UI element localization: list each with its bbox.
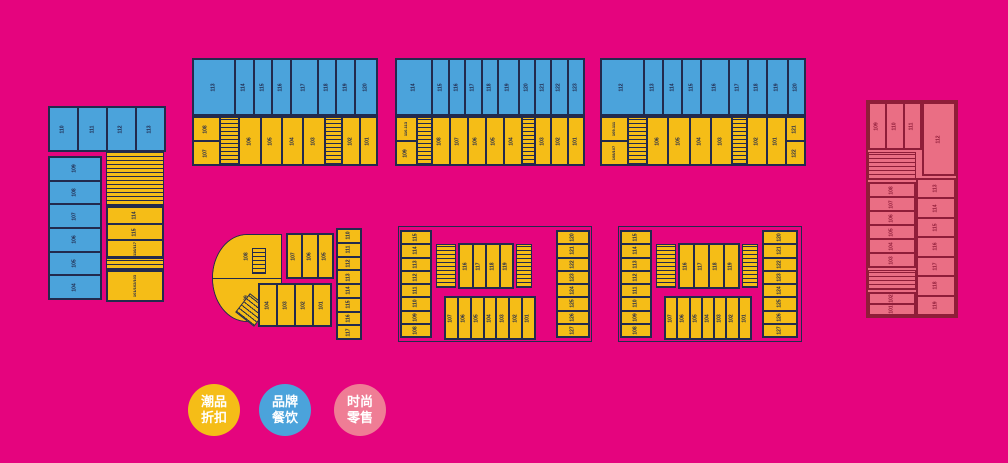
room-label: 110 (61, 125, 66, 133)
room: 107 (869, 197, 915, 211)
room-label: 116 (346, 314, 351, 322)
bottom1-stairwell (252, 248, 266, 274)
room: 107 (287, 234, 302, 278)
room: 108 (213, 235, 281, 279)
room-label: 113 (413, 260, 418, 268)
room: 112 (401, 271, 431, 284)
room-label: 109-111 (612, 122, 616, 136)
room: 115 (682, 59, 701, 115)
room-label: 108 (634, 326, 639, 334)
room: 115 (621, 231, 651, 244)
room-label: 118 (490, 262, 495, 270)
bottom2-stairwell-2 (516, 244, 532, 288)
room-label: 112 (620, 83, 625, 91)
top1-dining-row: 113114115116117118119120 (192, 58, 378, 116)
room-label: 108 (414, 326, 419, 334)
room: 105 (869, 225, 915, 239)
room-label: 118 (755, 83, 760, 91)
room: 123 (557, 271, 589, 284)
room: 126 (557, 311, 589, 324)
room-label: 111 (413, 287, 418, 295)
room-label: 119 (343, 83, 348, 91)
room: 115 (107, 224, 163, 241)
room-label: 109 (73, 165, 78, 173)
room-label: 115 (132, 228, 137, 236)
room-label: 103 (541, 137, 546, 145)
room-label: 102 (557, 137, 562, 145)
room-label: 105 (323, 252, 328, 260)
room: 106 (239, 117, 260, 165)
legend-item-retail: 时尚 零售 (334, 384, 386, 436)
room-label: 107 (890, 200, 895, 208)
room: 116 (459, 244, 473, 288)
room: 119 (724, 244, 739, 288)
room-label: 111 (90, 125, 95, 133)
room-label: 117 (933, 262, 938, 270)
room-label: 120 (778, 233, 783, 241)
room: 121 (557, 244, 589, 257)
room-label: 110 (633, 300, 638, 308)
room-label: 102 (348, 137, 353, 145)
retail-room-112: 112 (922, 102, 956, 176)
room-label: 106 (890, 214, 895, 222)
room-label: 101 (573, 137, 578, 145)
room-label: 101 (774, 137, 779, 145)
bottom1-mid-row: 104103102101 (258, 283, 332, 327)
retail-left-col: 108107106105104103 (868, 182, 916, 268)
bottom3-right-strip: 120121122123124125126127 (762, 230, 798, 338)
retail-stairwell-2 (868, 270, 916, 290)
room: 119 (336, 59, 355, 115)
room-label: 124 (778, 286, 783, 294)
room: 112 (601, 59, 644, 115)
room: 107 (193, 141, 220, 165)
stairwell (417, 117, 432, 165)
room: 116 (701, 59, 729, 115)
room-label: 109 (404, 149, 409, 157)
room: 109 (396, 141, 417, 165)
stairwell (325, 117, 342, 165)
retail-top-row: 109110111 (868, 102, 922, 150)
bottom2-mid-top: 116117118119 (458, 243, 514, 289)
room: 108/107 (601, 141, 628, 165)
room-label: 106 (307, 252, 312, 260)
room: 106 (302, 234, 317, 278)
room-label: 121 (571, 247, 576, 255)
room: 104 (504, 117, 522, 165)
room-label: 127 (571, 326, 576, 334)
bottom2-stairwell (436, 244, 456, 288)
legend-label: 折扣 (201, 410, 227, 426)
room-label: 105 (693, 314, 698, 322)
room-label: 118 (933, 282, 938, 290)
left-right-lower: 101/102/103 (106, 270, 164, 302)
room-label: 113 (211, 83, 216, 91)
room: 107 (49, 204, 101, 228)
room: 104 (49, 275, 101, 299)
room: 110 (49, 107, 78, 151)
room-label: 121 (541, 83, 546, 91)
retail-right-col: 113114115116117118119 (916, 178, 956, 316)
room-label: 120 (571, 233, 576, 241)
room: 112 (923, 103, 955, 175)
room-label: 112 (413, 273, 418, 281)
room: 123 (763, 271, 797, 284)
room-label: 123 (571, 273, 576, 281)
room-label: 114 (242, 83, 247, 91)
room: 105 (668, 117, 689, 165)
room-label: 122 (557, 83, 562, 91)
room-label: 113 (148, 125, 153, 133)
room-label: 125 (571, 300, 576, 308)
room: 111 (337, 243, 361, 257)
room-label: 117 (302, 83, 307, 91)
room: 124 (557, 284, 589, 297)
room-label: 123 (778, 273, 783, 281)
room: 117 (729, 59, 748, 115)
room-stack: 110-113109 (396, 117, 417, 165)
room: 114 (396, 59, 432, 115)
room-label: 105 (475, 314, 480, 322)
retail-stairwell (868, 152, 916, 180)
left-col: 109108107106105104 (48, 156, 102, 300)
legend-label: 零售 (347, 410, 373, 426)
room-label: 104 (698, 137, 703, 145)
room: 114 (107, 207, 163, 224)
room: 115 (337, 298, 361, 312)
bottom3-mid-bottom: 107106105104103102101 (664, 296, 752, 340)
room: 103 (711, 117, 732, 165)
room: 122 (763, 258, 797, 271)
room-label: 108/107 (612, 146, 616, 160)
bottom2-left-strip: 115114113112111110109108 (400, 230, 432, 338)
room: 117 (291, 59, 318, 115)
room-label: 107 (456, 137, 461, 145)
room-label: 102 (890, 294, 895, 302)
left-top-row: 110111112113 (48, 106, 166, 152)
bottom3-left-strip: 115114113112111110109108 (620, 230, 652, 338)
room-label: 112 (346, 259, 351, 267)
room: 113 (644, 59, 663, 115)
room: 118 (486, 244, 500, 288)
room-label: 106 (73, 236, 78, 244)
stairwell (732, 117, 747, 165)
room-label: 115 (413, 234, 418, 242)
room: 106 (468, 117, 486, 165)
room-label: 111 (346, 246, 351, 254)
room: 108 (49, 181, 101, 205)
room-label: 119 (775, 83, 780, 91)
room: 102 (295, 284, 313, 326)
room-label: 119 (506, 83, 511, 91)
room-label: 101/102/103 (133, 275, 137, 297)
room-label: 110 (413, 300, 418, 308)
bottom2-right-strip: 120121122123124125126127 (556, 230, 590, 338)
room-label: 109 (875, 122, 880, 130)
room: 110 (337, 229, 361, 243)
room: 119 (498, 59, 519, 115)
room: 123 (568, 59, 584, 115)
room-label: 102 (302, 301, 307, 309)
room: 110 (886, 103, 903, 149)
room: 101 (313, 284, 331, 326)
room-label: 103 (284, 301, 289, 309)
room: 122 (557, 258, 589, 271)
room: 108 (621, 324, 651, 337)
room: 105 (49, 252, 101, 276)
room: 127 (763, 324, 797, 337)
room-stack: 121122 (786, 117, 805, 165)
top2-dining-row: 114115116117118119120121122123 (395, 58, 585, 116)
room: 105 (471, 297, 484, 339)
room: 117 (694, 244, 709, 288)
room: 121 (535, 59, 551, 115)
room-label: 116 (712, 83, 717, 91)
room-label: 101 (526, 314, 531, 322)
room: 115 (917, 218, 955, 237)
room: 103 (714, 297, 726, 339)
room-label: 116 (455, 83, 460, 91)
room-label: 111 (633, 287, 638, 295)
room-label: 115 (346, 301, 351, 309)
room-label: 114 (346, 287, 351, 295)
room: 119 (500, 244, 514, 288)
room: 113 (136, 107, 165, 151)
room-label: 106 (474, 137, 479, 145)
room: 113 (917, 179, 955, 198)
room: 103 (869, 253, 915, 267)
room-label: 110 (346, 232, 351, 240)
room: 103 (303, 117, 324, 165)
room: 121 (786, 117, 805, 141)
room-label: 126 (571, 313, 576, 321)
room-label: 105 (73, 259, 78, 267)
left-stairwell-2 (106, 258, 164, 270)
room: 106 (49, 228, 101, 252)
room-label: 108 (204, 125, 209, 133)
room-label: 104 (488, 314, 493, 322)
room-label: 101 (320, 301, 325, 309)
room-label: 119 (933, 301, 938, 309)
room-label: 115 (933, 224, 938, 232)
room-label: 105 (269, 137, 274, 145)
room-label: 126 (778, 313, 783, 321)
top3-discount-row: 109-111108/107106105104103102101121122 (600, 116, 806, 166)
room: 110 (621, 297, 651, 310)
legend-label: 品牌 (272, 394, 298, 410)
room: 116/117 (107, 240, 163, 257)
room: 111 (401, 284, 431, 297)
room-label: 108 (73, 188, 78, 196)
top3-dining-row: 112113114115116117118119120 (600, 58, 806, 116)
room-label: 101 (890, 305, 895, 313)
room-label: 115 (438, 83, 443, 91)
legend-label: 餐饮 (272, 410, 298, 426)
room-label: 117 (699, 262, 704, 270)
room-label: 121 (778, 247, 783, 255)
room-label: 118 (714, 262, 719, 270)
room: 105 (486, 117, 504, 165)
room-label: 119 (729, 262, 734, 270)
room: 120 (519, 59, 535, 115)
room-label: 102 (754, 137, 759, 145)
room: 120 (788, 59, 805, 115)
room-label: 101 (366, 137, 371, 145)
room-label: 122 (793, 149, 798, 157)
room: 102 (869, 293, 915, 304)
room-label: 121 (793, 125, 798, 133)
room: 107 (445, 297, 458, 339)
room: 118 (709, 244, 724, 288)
room: 117 (465, 59, 481, 115)
room-label: 107 (73, 212, 78, 220)
room: 116 (679, 244, 694, 288)
room: 119 (767, 59, 788, 115)
room: 117 (917, 257, 955, 276)
room-label: 116 (684, 262, 689, 270)
legend-label: 潮品 (201, 394, 227, 410)
room: 104 (690, 117, 711, 165)
room: 104 (282, 117, 303, 165)
room-label: 109 (634, 313, 639, 321)
room: 110 (401, 297, 431, 310)
room-label: 118 (325, 83, 330, 91)
room-label: 101 (742, 314, 747, 322)
room-label: 114 (413, 247, 418, 255)
room-stack: 108107 (193, 117, 220, 165)
room-label: 103 (719, 137, 724, 145)
room-label: 104 (266, 301, 271, 309)
room: 116 (917, 237, 955, 256)
room-label: 123 (573, 83, 578, 91)
floor-plan-canvas: 110111112113109108107106105104114115116/… (0, 0, 1008, 463)
room: 124 (763, 284, 797, 297)
room-label: 103 (312, 137, 317, 145)
room-label: 105 (890, 228, 895, 236)
room: 102 (509, 297, 522, 339)
room: 119 (917, 296, 955, 315)
room: 108 (432, 117, 450, 165)
room: 109-111 (601, 117, 628, 141)
top1-discount-row: 108107106105104103102101 (192, 116, 378, 166)
room: 113 (401, 258, 431, 271)
room: 114 (621, 244, 651, 257)
room-label: 118 (487, 83, 492, 91)
room: 102 (747, 117, 766, 165)
room-label: 117 (346, 328, 351, 336)
room-label: 116 (933, 243, 938, 251)
room-label: 114 (633, 247, 638, 255)
room: 114 (235, 59, 254, 115)
room: 112 (621, 271, 651, 284)
room-label: 107 (449, 314, 454, 322)
room-label: 110-113 (404, 122, 408, 136)
room-label: 106 (681, 314, 686, 322)
legend-item-dining: 品牌 餐饮 (259, 384, 311, 436)
room-label: 105 (492, 137, 497, 145)
room: 122 (786, 141, 805, 165)
room: 126 (763, 311, 797, 324)
room-label: 119 (504, 262, 509, 270)
room: 111 (621, 284, 651, 297)
room-label: 117 (736, 83, 741, 91)
stairwell (522, 117, 535, 165)
room: 116 (449, 59, 465, 115)
room-label: 116 (463, 262, 468, 270)
room-label: 104 (890, 242, 895, 250)
room: 106 (458, 297, 471, 339)
room: 115 (254, 59, 273, 115)
room: 101 (568, 117, 584, 165)
room: 107 (665, 297, 677, 339)
room: 112 (337, 257, 361, 271)
room: 101 (767, 117, 786, 165)
room: 108 (401, 324, 431, 337)
room-label: 116 (279, 83, 284, 91)
stairwell (220, 117, 239, 165)
legend-item-discount: 潮品 折扣 (188, 384, 240, 436)
room-label: 127 (778, 326, 783, 334)
room-label: 114 (933, 204, 938, 212)
room-label: 115 (689, 83, 694, 91)
room-label: 110 (892, 122, 897, 130)
room-label: 104 (510, 137, 515, 145)
room-label: 109 (414, 313, 419, 321)
room: 122 (551, 59, 567, 115)
room-label: 102 (730, 314, 735, 322)
room: 111 (904, 103, 921, 149)
room-label: 115 (260, 83, 265, 91)
room-label: 122 (778, 260, 783, 268)
room-label: 116/117 (133, 242, 137, 256)
room-label: 111 (910, 122, 915, 130)
room: 102 (726, 297, 738, 339)
room-label: 106 (248, 137, 253, 145)
room-label: 103 (718, 314, 723, 322)
bottom1-right-strip: 110111112113114115116117 (336, 228, 362, 340)
room: 114 (401, 244, 431, 257)
room: 111 (78, 107, 107, 151)
room-label: 105 (676, 137, 681, 145)
room-label: 104 (73, 283, 78, 291)
room: 115 (432, 59, 448, 115)
room: 104 (259, 284, 277, 326)
room: 105 (690, 297, 702, 339)
room-label: 117 (471, 83, 476, 91)
room: 125 (557, 297, 589, 310)
bottom2-mid-bottom: 107106105104103102101 (444, 296, 536, 340)
bottom3-mid-top: 116117118119 (678, 243, 740, 289)
room: 118 (748, 59, 767, 115)
room-label: 117 (477, 262, 482, 270)
room: 108 (193, 117, 220, 141)
room-label: 103 (890, 256, 895, 264)
room-label: 125 (778, 300, 783, 308)
room-label: 112 (936, 135, 941, 143)
room-label: 107 (669, 314, 674, 322)
room-label: 113 (651, 83, 656, 91)
room: 125 (763, 297, 797, 310)
room: 108 (869, 183, 915, 197)
room: 116 (337, 312, 361, 326)
room-label: 106 (462, 314, 467, 322)
room-label: 112 (633, 273, 638, 281)
room: 118 (917, 276, 955, 295)
room-label: 113 (933, 185, 938, 193)
room: 110-113 (396, 117, 417, 141)
room: 106 (677, 297, 689, 339)
room-label: 104 (705, 314, 710, 322)
